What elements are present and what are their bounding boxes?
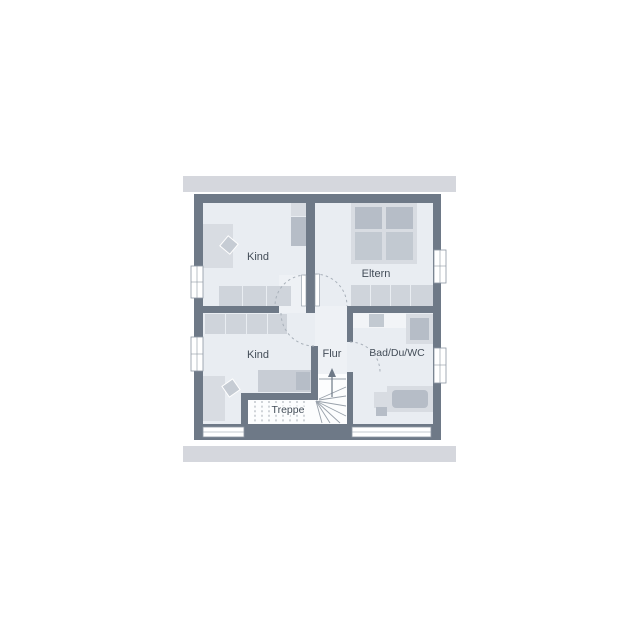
wardrobe bbox=[351, 285, 433, 306]
door-leaf-kind-1 bbox=[302, 275, 307, 306]
roof-edge-bar-bottom bbox=[183, 446, 456, 462]
wardrobe-shelf bbox=[291, 203, 306, 216]
window-bad-bottom bbox=[352, 427, 431, 437]
blanket-left bbox=[355, 232, 382, 260]
room-label-treppe: Treppe bbox=[272, 404, 305, 416]
door-leaf-eltern bbox=[315, 274, 320, 306]
window-kind-1-left bbox=[191, 266, 203, 298]
room-label-eltern: Eltern bbox=[362, 268, 391, 280]
wall-kind1-eltern bbox=[306, 203, 315, 313]
window-bad-right bbox=[434, 348, 446, 383]
wall-bad-left-lower bbox=[347, 372, 353, 424]
window-kind-2-bottom bbox=[203, 427, 244, 437]
roof-edge-bar-top bbox=[183, 176, 456, 192]
room-label-bad: Bad/Du/WC bbox=[369, 347, 425, 359]
bed-pillow bbox=[296, 372, 310, 390]
room-label-flur: Flur bbox=[323, 348, 342, 360]
wardrobe bbox=[291, 217, 306, 246]
wc-bowl bbox=[374, 392, 388, 408]
floor-plan-drawing: Kind Eltern Kind bbox=[0, 0, 636, 636]
desk bbox=[203, 376, 225, 421]
pillow-right bbox=[386, 207, 413, 229]
room-label-kind-1: Kind bbox=[247, 251, 269, 263]
sink bbox=[369, 314, 384, 327]
floor-plan: Kind Eltern Kind bbox=[0, 0, 636, 636]
wardrobe bbox=[205, 314, 287, 334]
wall-kind1-kind2 bbox=[203, 306, 279, 313]
pillow-left bbox=[355, 207, 382, 229]
room-label-kind-2: Kind bbox=[247, 349, 269, 361]
window-eltern-right bbox=[434, 250, 446, 283]
wc-base bbox=[376, 407, 387, 416]
window-kind-2-left bbox=[191, 337, 203, 371]
wall-eltern-bad bbox=[347, 306, 433, 313]
blanket-right bbox=[386, 232, 413, 260]
wall-kind2-flur bbox=[311, 346, 318, 400]
wall-stair-top bbox=[241, 393, 318, 400]
shower bbox=[410, 318, 429, 340]
wall-bad-left-upper bbox=[347, 313, 353, 342]
bathtub bbox=[392, 390, 428, 408]
sideboard bbox=[219, 286, 291, 306]
